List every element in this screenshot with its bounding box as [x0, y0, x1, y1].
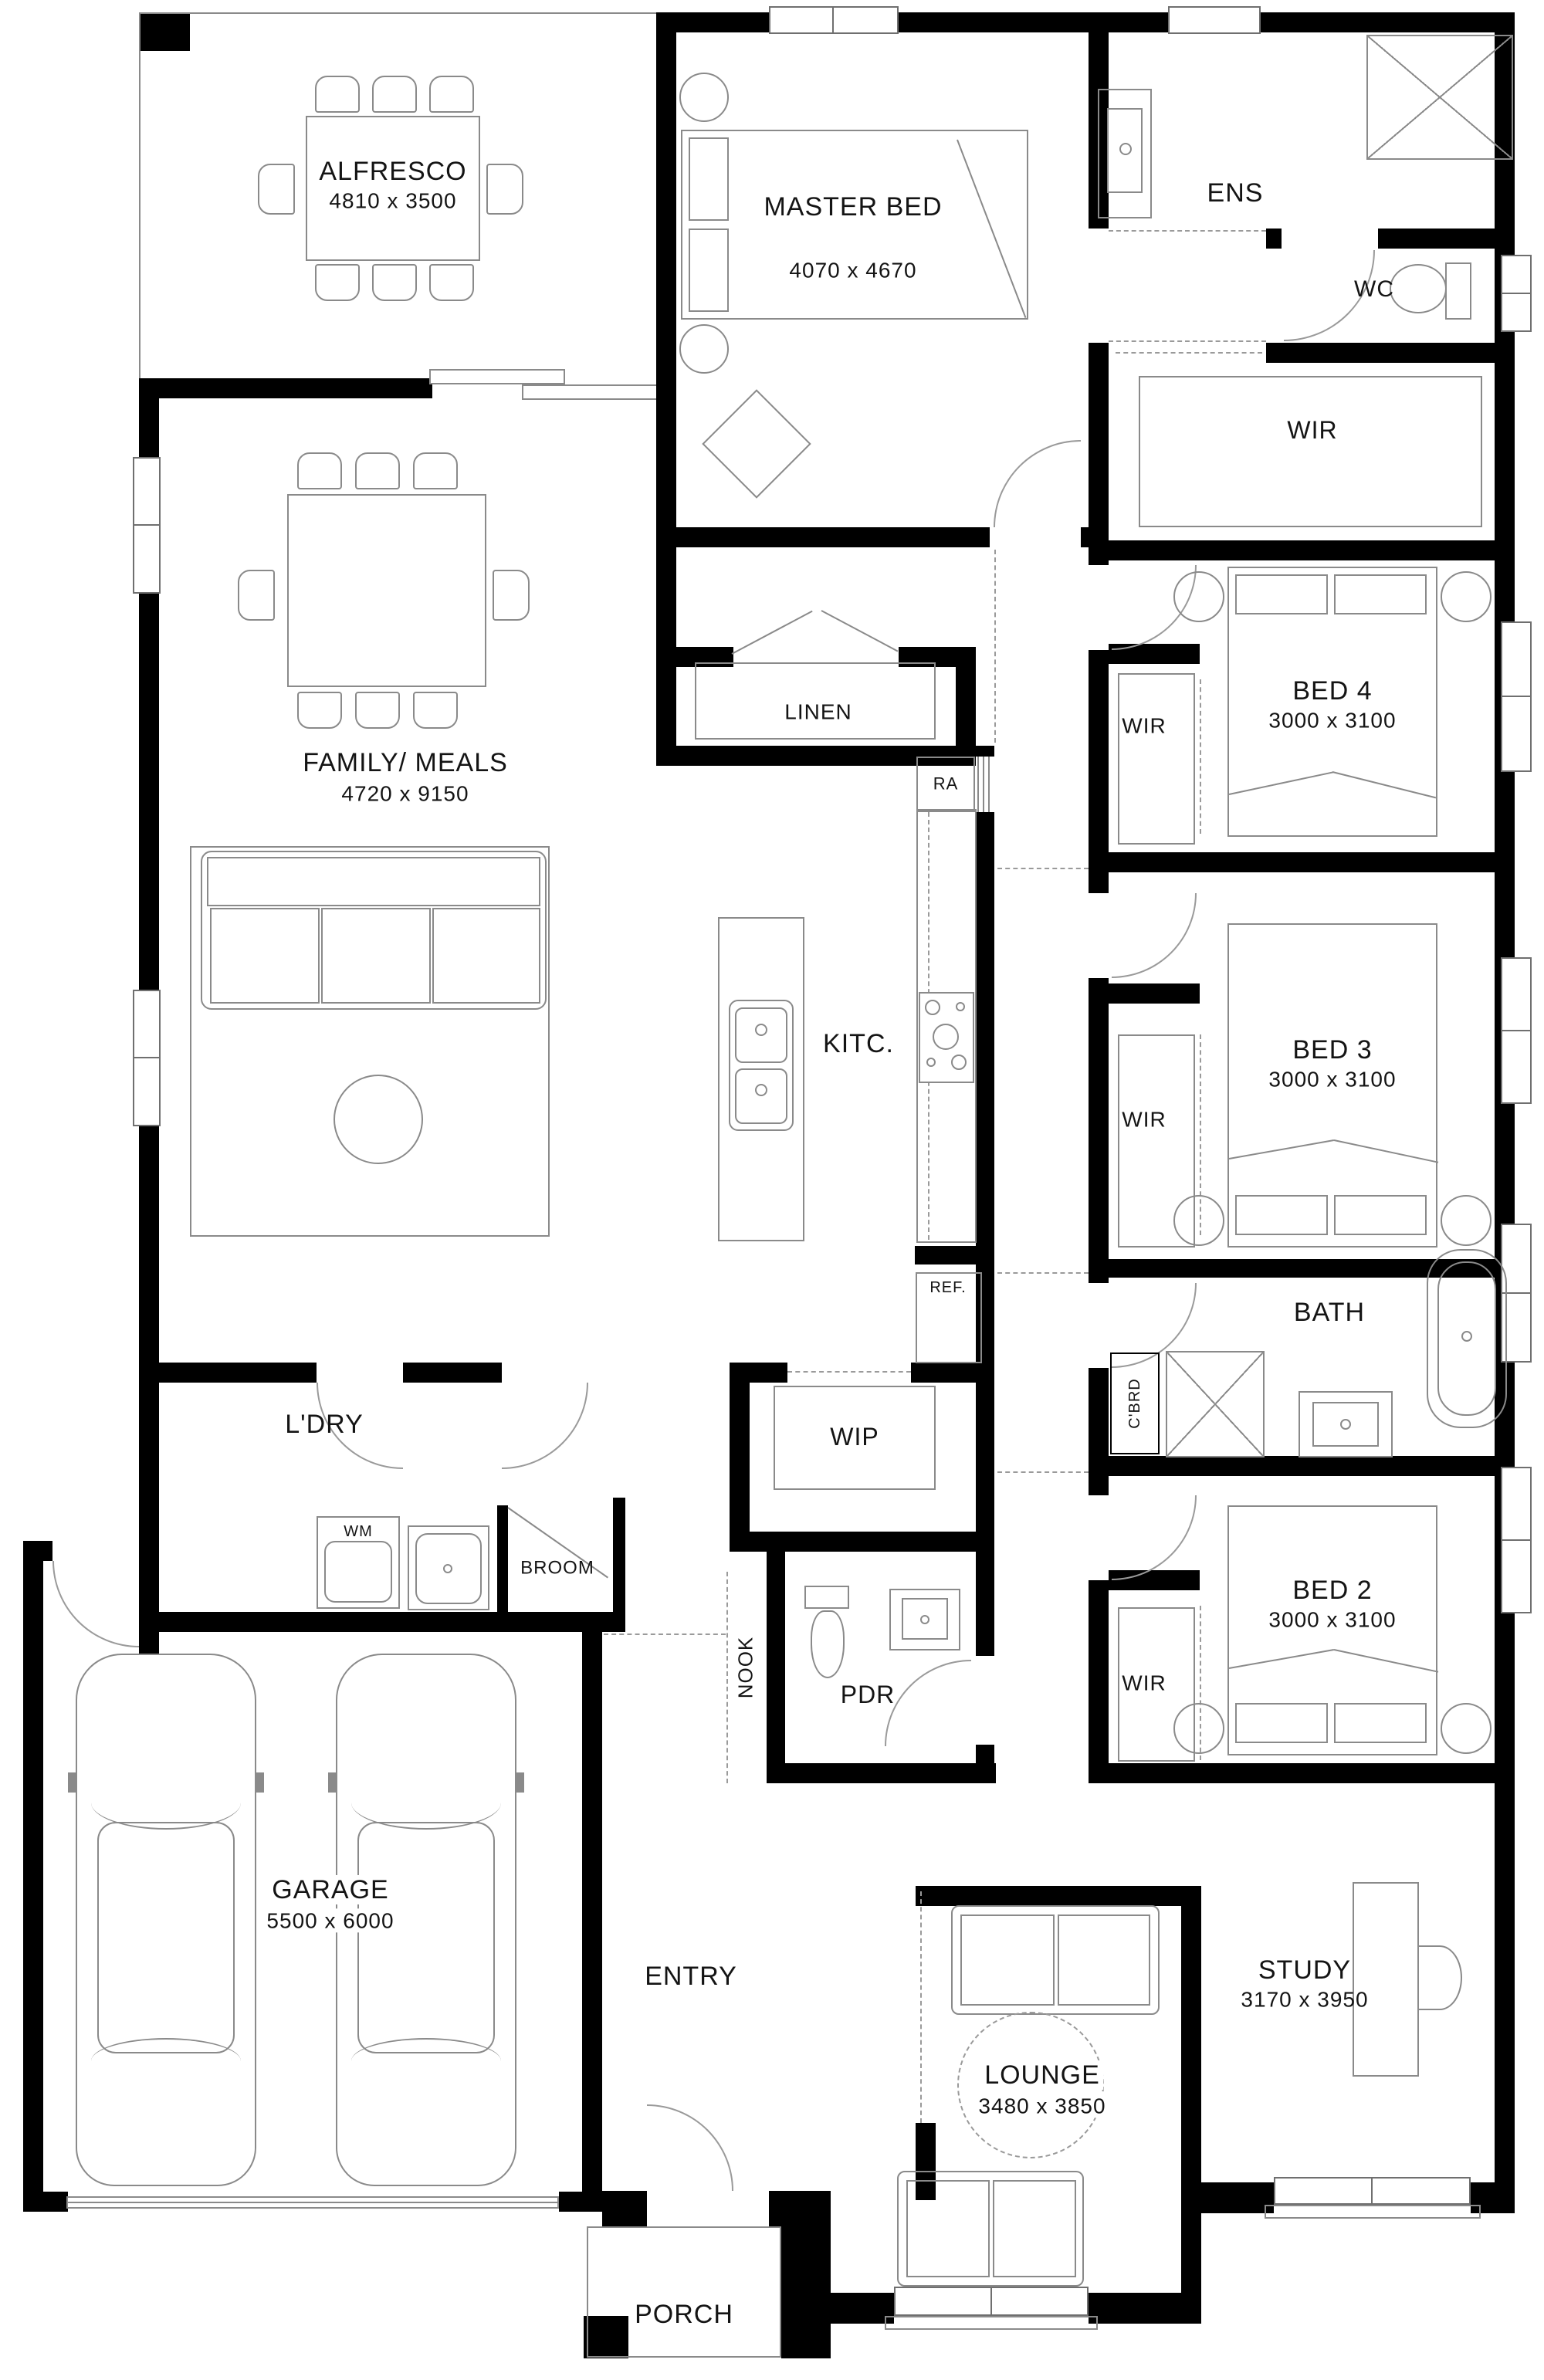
- bedside-table: [1441, 1195, 1492, 1246]
- washing-machine-inner: [324, 1541, 392, 1603]
- wip-name: WIP: [830, 1423, 879, 1451]
- window-sill: [1265, 2205, 1481, 2219]
- opening-dashed: [1116, 352, 1262, 354]
- wall: [1089, 343, 1109, 547]
- room-dims-family: 4720 x 9150: [341, 781, 469, 805]
- alfresco-edge-line: [139, 12, 658, 14]
- bed4-dims: 3000 x 3100: [1268, 708, 1396, 732]
- room-label-family: FAMILY/ MEALS: [303, 748, 508, 777]
- porch-outline: [587, 2226, 781, 2358]
- chair: [493, 570, 530, 621]
- study-desk: [1353, 1882, 1419, 2077]
- room-label-study: STUDY: [1258, 1955, 1351, 1985]
- wall: [656, 12, 676, 746]
- car-roof: [97, 1822, 235, 2053]
- master-name: MASTER BED: [764, 192, 942, 222]
- room-label-ldry: L'DRY: [285, 1410, 364, 1439]
- room-dims-bed3: 3000 x 3100: [1268, 1067, 1396, 1091]
- wir-bed4-name: WIR: [1122, 713, 1166, 737]
- room-dims-master: 4070 x 4670: [789, 258, 916, 282]
- room-label-porch: PORCH: [635, 2300, 733, 2329]
- car-mirror: [256, 1772, 264, 1793]
- pdr-toilet-bowl: [811, 1610, 845, 1678]
- room-label-entry: ENTRY: [645, 1962, 737, 1991]
- wall: [911, 1363, 994, 1383]
- wc-cistern: [1445, 262, 1471, 320]
- wall: [139, 378, 432, 398]
- sliding-door: [522, 384, 658, 400]
- room-dims-garage: 5500 x 6000: [262, 1908, 398, 1932]
- room-label-wip: WIP: [830, 1424, 879, 1451]
- bed2-dims: 3000 x 3100: [1268, 1607, 1396, 1631]
- room-label-ref: REF.: [929, 1279, 966, 1296]
- window-sill: [885, 2316, 1098, 2330]
- pillow: [689, 229, 729, 312]
- room-dims-alfresco: 4810 x 3500: [329, 188, 456, 212]
- sofa-cushion: [993, 2180, 1076, 2277]
- opening-dashed: [787, 1371, 911, 1373]
- wir-bed3-shelf: [1118, 1034, 1195, 1248]
- coffee-table: [334, 1075, 423, 1164]
- wir-master-name: WIR: [1287, 416, 1337, 444]
- wall: [582, 1612, 602, 2212]
- wall: [23, 1541, 52, 1561]
- wir-master-shelf: [1139, 376, 1482, 527]
- cooktop-burner: [925, 1000, 940, 1015]
- pillow: [689, 137, 729, 221]
- chair: [429, 264, 474, 301]
- wall: [1089, 1763, 1515, 1783]
- wir-bed4-shelf: [1118, 673, 1195, 845]
- room-label-nook: NOOK: [734, 1637, 757, 1699]
- wall: [1081, 527, 1109, 547]
- chair: [413, 452, 458, 489]
- wall: [1089, 650, 1109, 893]
- linen-name: LINEN: [784, 699, 852, 723]
- wall: [1378, 229, 1515, 249]
- wall: [781, 2293, 894, 2324]
- ra-grille-line: [983, 757, 984, 812]
- opening-dashed: [1109, 340, 1266, 342]
- pillow: [1334, 1195, 1427, 1235]
- cooktop-burner: [956, 1002, 965, 1011]
- room-label-alfresco: ALFRESCO: [319, 157, 466, 186]
- alfresco-dims: 4810 x 3500: [329, 188, 456, 212]
- wall: [956, 647, 976, 752]
- opening-dashed: [920, 1891, 922, 2123]
- broom-name: BROOM: [520, 1558, 594, 1579]
- car-roof: [357, 1822, 495, 2053]
- room-label-ra: RA: [933, 775, 959, 794]
- bed4-name: BED 4: [1292, 676, 1372, 706]
- door-arc-bed3: [1112, 893, 1197, 978]
- kitchen-name: KITC.: [823, 1029, 894, 1058]
- wall: [1266, 229, 1282, 249]
- wc-toilet-bowl: [1390, 264, 1447, 313]
- pdr-cistern: [804, 1586, 849, 1609]
- study-dims: 3170 x 3950: [1241, 1987, 1368, 2011]
- door-arc-garage: [52, 1561, 139, 1647]
- window-mullion: [990, 2287, 992, 2316]
- chair: [486, 164, 523, 215]
- garage-name: GARAGE: [272, 1875, 388, 1904]
- sofa-seat: [321, 908, 431, 1004]
- window-mullion: [832, 6, 834, 34]
- pdr-name: PDR: [841, 1681, 896, 1708]
- study-chair: [1417, 1945, 1462, 2010]
- island-sink-bowl: [735, 1068, 787, 1124]
- bulkhead-dashed: [604, 1633, 726, 1635]
- room-label-bed4: BED 4: [1292, 676, 1372, 706]
- island-faucet: [755, 1024, 767, 1036]
- wall: [497, 1505, 508, 1612]
- sliding-door: [429, 369, 565, 384]
- wall: [1089, 1580, 1109, 1783]
- door-arc-pdr: [885, 1660, 971, 1746]
- wir-bed2-name: WIR: [1122, 1671, 1166, 1694]
- cbrd-name: C'BRD: [1126, 1378, 1143, 1429]
- linen-door-leaf: [732, 611, 813, 655]
- window: [1168, 6, 1261, 34]
- room-label-linen: LINEN: [784, 699, 852, 723]
- floor-plan: ALFRESCO 4810 x 3500 MASTER BED 4070 x 4…: [0, 0, 1544, 2380]
- room-label-bed2: BED 2: [1292, 1576, 1372, 1605]
- wall: [159, 1612, 625, 1632]
- room-label-ens: ENS: [1207, 178, 1264, 208]
- pillow: [1334, 574, 1427, 614]
- bulkhead-dashed: [994, 550, 996, 743]
- chair: [297, 692, 342, 729]
- room-dims-study: 3170 x 3950: [1241, 1987, 1368, 2011]
- wall: [1109, 1456, 1515, 1476]
- wall: [1089, 547, 1109, 565]
- car-mirror: [328, 1772, 336, 1793]
- bath-faucet: [1340, 1419, 1351, 1430]
- wall: [730, 1532, 994, 1552]
- door-arc-front-entry: [647, 2104, 733, 2191]
- chair: [429, 76, 474, 113]
- window-mullion: [1501, 1539, 1532, 1541]
- window-mullion: [1371, 2177, 1373, 2205]
- bath-name: BATH: [1294, 1298, 1365, 1327]
- garage-door-line: [66, 2202, 559, 2203]
- linen-door-leaf: [821, 610, 899, 652]
- chair: [315, 264, 360, 301]
- pdr-faucet: [920, 1615, 929, 1624]
- wall: [976, 746, 994, 757]
- chair: [355, 452, 400, 489]
- bathtub-drain: [1461, 1331, 1472, 1342]
- ens-faucet: [1119, 143, 1132, 155]
- door-arc-bed2: [1112, 1495, 1197, 1580]
- ra-name: RA: [933, 774, 959, 794]
- alfresco-edge-line: [139, 12, 141, 380]
- wall: [23, 1541, 43, 2212]
- garage-dims: 5500 x 6000: [266, 1908, 394, 1932]
- bulkhead-dashed: [997, 868, 1089, 869]
- room-label-wir-bed4: WIR: [1122, 713, 1166, 737]
- window-mullion: [133, 1057, 161, 1058]
- bulkhead-dashed: [997, 1272, 1089, 1274]
- room-label-wc: WC: [1354, 276, 1394, 303]
- room-label-wm: WM: [344, 1523, 373, 1540]
- lounge-name: LOUNGE: [984, 2060, 1100, 2090]
- robe-door-dashed: [1200, 679, 1201, 834]
- window-mullion: [1501, 293, 1532, 294]
- wall: [403, 1363, 502, 1383]
- wall: [1109, 540, 1515, 560]
- dining-table: [287, 494, 486, 687]
- chair: [355, 692, 400, 729]
- bedside-table: [1441, 571, 1492, 622]
- wir-bed3-name: WIR: [1122, 1107, 1166, 1131]
- pillow: [1334, 1703, 1427, 1743]
- room-label-wir-master: WIR: [1287, 417, 1337, 445]
- wall: [1089, 978, 1109, 1283]
- ens-name: ENS: [1207, 178, 1264, 208]
- ens-shower: [1366, 35, 1513, 160]
- room-label-broom: BROOM: [520, 1559, 594, 1579]
- room-label-lounge: LOUNGE: [981, 2060, 1103, 2090]
- door-arc-laundry-hall: [502, 1383, 588, 1469]
- wall: [1181, 2182, 1274, 2213]
- wall: [1089, 1368, 1109, 1495]
- bulkhead-dashed: [997, 1471, 1089, 1473]
- sofa-seat: [432, 908, 540, 1004]
- room-label-pdr: PDR: [841, 1681, 896, 1709]
- ra-grille-line: [977, 757, 979, 812]
- sofa-cushion: [960, 1914, 1055, 2006]
- lounge-dims: 3480 x 3850: [978, 2094, 1106, 2118]
- wm-name: WM: [344, 1523, 373, 1540]
- wall: [1181, 1886, 1201, 2213]
- door-arc-master: [994, 440, 1081, 527]
- wall: [559, 2192, 602, 2212]
- sofa-cushion: [906, 2180, 990, 2277]
- ra-grille-line: [988, 757, 990, 812]
- room-label-master: MASTER BED: [757, 192, 950, 222]
- bed2-name: BED 2: [1292, 1576, 1372, 1605]
- wall: [1109, 983, 1200, 1004]
- alfresco-name: ALFRESCO: [319, 157, 466, 186]
- window-mullion: [1501, 1030, 1532, 1031]
- wall: [781, 2191, 831, 2358]
- family-dims: 4720 x 9150: [341, 781, 469, 805]
- cooktop-burner: [933, 1024, 959, 1050]
- bedside-table: [1441, 1703, 1492, 1754]
- wall: [656, 527, 990, 547]
- car-rear-window: [351, 2038, 501, 2084]
- family-name: FAMILY/ MEALS: [303, 748, 508, 777]
- wc-name: WC: [1354, 276, 1394, 302]
- pillow: [1235, 1195, 1328, 1235]
- bedside-table: [1173, 571, 1224, 622]
- island-faucet: [755, 1084, 767, 1096]
- master-bed: [681, 130, 1028, 320]
- trough-drain: [443, 1564, 452, 1573]
- room-label-cbrd: C'BRD: [1126, 1378, 1143, 1429]
- study-name: STUDY: [1258, 1955, 1351, 1985]
- wall: [915, 1246, 992, 1264]
- wall: [785, 1763, 996, 1783]
- sofa-seat: [210, 908, 320, 1004]
- room-label-garage: GARAGE: [267, 1875, 393, 1904]
- wall: [767, 1552, 785, 1783]
- window: [769, 6, 899, 34]
- wall: [730, 1363, 750, 1552]
- wall: [1109, 852, 1515, 872]
- ref-name: REF.: [929, 1279, 966, 1296]
- wall: [602, 2191, 647, 2226]
- cooktop-burner: [951, 1055, 967, 1070]
- chair: [372, 264, 417, 301]
- entry-name: ENTRY: [645, 1962, 737, 1991]
- opening-dashed: [1109, 230, 1266, 232]
- wall: [139, 12, 190, 51]
- master-dims: 4070 x 4670: [789, 258, 916, 282]
- wall: [23, 2192, 68, 2212]
- room-label-kitchen: KITC.: [823, 1029, 894, 1058]
- wall: [159, 1363, 317, 1383]
- pillow: [1235, 574, 1328, 614]
- opening-dashed: [726, 1572, 728, 1783]
- bedside-table: [679, 324, 729, 374]
- room-dims-bed4: 3000 x 3100: [1268, 708, 1396, 732]
- chair: [297, 452, 342, 489]
- room-label-bath: BATH: [1294, 1298, 1365, 1327]
- room-label-wir-bed3: WIR: [1122, 1107, 1166, 1131]
- wall: [1089, 2293, 1183, 2324]
- wall: [916, 1886, 1181, 1906]
- chair: [315, 76, 360, 113]
- wall: [613, 1498, 625, 1612]
- porch-name: PORCH: [635, 2300, 733, 2329]
- room-label-bed3: BED 3: [1292, 1035, 1372, 1065]
- room-label-wir-bed2: WIR: [1122, 1671, 1166, 1694]
- sofa-cushion: [1058, 1914, 1150, 2006]
- room-dims-lounge: 3480 x 3850: [975, 2094, 1109, 2118]
- wall: [976, 812, 994, 1656]
- window-mullion: [1501, 696, 1532, 697]
- ldry-name: L'DRY: [285, 1410, 364, 1439]
- car-rear-window: [91, 2038, 241, 2084]
- window-mullion: [133, 524, 161, 526]
- bath-shower: [1166, 1351, 1265, 1457]
- bed3-dims: 3000 x 3100: [1268, 1067, 1396, 1091]
- sofa-back: [207, 857, 540, 906]
- cooktop-burner: [926, 1058, 936, 1067]
- wall: [139, 1541, 159, 1655]
- bedside-table: [679, 73, 729, 122]
- car-mirror: [516, 1772, 524, 1793]
- pillow: [1235, 1703, 1328, 1743]
- room-dims-bed2: 3000 x 3100: [1268, 1607, 1396, 1631]
- bed3-name: BED 3: [1292, 1035, 1372, 1065]
- wall: [1266, 343, 1515, 363]
- chair: [413, 692, 458, 729]
- nook-name: NOOK: [733, 1637, 757, 1699]
- chair: [258, 164, 295, 215]
- chair: [238, 570, 275, 621]
- chair: [372, 76, 417, 113]
- corner-chair: [702, 389, 811, 498]
- car-mirror: [68, 1772, 76, 1793]
